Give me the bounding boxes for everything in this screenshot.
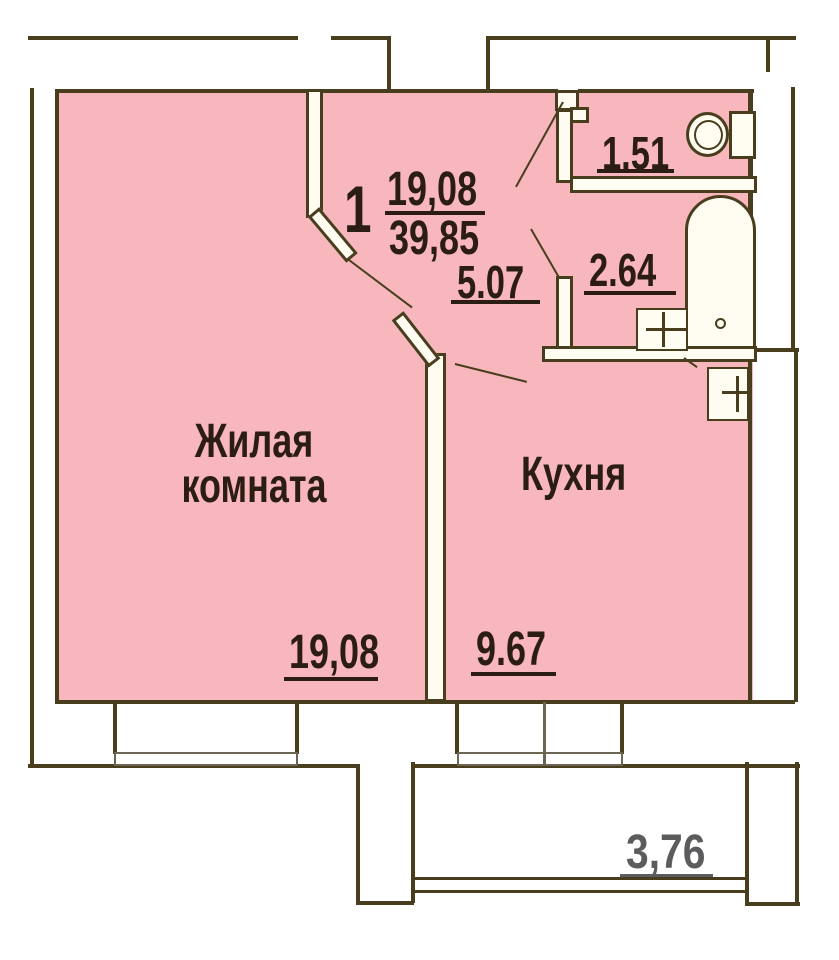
wall-top-outer-left xyxy=(28,36,298,40)
toilet-area-underline xyxy=(597,169,674,173)
apartment-number: 1 xyxy=(344,176,372,242)
wall-right-outer-mid xyxy=(794,351,798,702)
window-kitchen-balcony-door xyxy=(457,752,623,766)
toilet-tank xyxy=(729,111,756,159)
bathtub-drain xyxy=(715,318,726,329)
living-room-area-label: 19,08 xyxy=(289,629,379,677)
toilet-bowl-inner xyxy=(694,120,723,150)
balcony-wall-right xyxy=(745,762,749,906)
hallway-partition-wall xyxy=(306,89,323,218)
wall-left-outer xyxy=(30,88,34,768)
kitchen-area-underline xyxy=(471,672,556,676)
building-edge-right-bottom xyxy=(795,762,799,906)
hallway-area-label: 5.07 xyxy=(457,259,524,305)
bathroom-sink-cross-v xyxy=(662,312,665,347)
balcony-area-underline xyxy=(620,874,713,877)
living-room-label-line2: комната xyxy=(179,464,329,509)
living-kitchen-partition-wall xyxy=(425,353,446,702)
window-kitchen-jamb-left xyxy=(455,702,459,754)
wall-left-inner xyxy=(55,91,59,703)
living-room-area-underline xyxy=(284,677,378,681)
bathroom-sink-cross-h xyxy=(646,328,686,331)
window-kitchen-jamb-right xyxy=(620,702,624,754)
balcony-area-label: 3,76 xyxy=(626,829,705,877)
balcony-railing-inner xyxy=(413,890,747,893)
bathroom-left-wall xyxy=(556,276,573,352)
kitchen-sink-cross-v xyxy=(736,376,739,412)
wall-top-tick xyxy=(766,38,770,72)
wall-step-down xyxy=(356,764,360,904)
window-living-jamb-right xyxy=(295,702,299,754)
kitchen-sink xyxy=(707,367,749,421)
balcony-wall-left xyxy=(411,762,415,903)
bathroom-area-underline xyxy=(584,291,676,295)
wall-top-outer-right xyxy=(486,36,796,40)
balcony-bottom-line xyxy=(745,902,800,906)
wall-right-outer-top xyxy=(791,87,795,351)
window-living-jamb-left xyxy=(113,702,117,754)
kitchen-area-label: 9.67 xyxy=(476,626,546,674)
living-room-label-line1: Жилая xyxy=(179,419,329,464)
wall-top-jog-right xyxy=(486,38,490,91)
living-area-value: 19,08 xyxy=(387,166,477,214)
wall-top-outer-mid xyxy=(331,36,391,40)
bathroom-area-label: 2.64 xyxy=(589,247,656,293)
wall-top-inner-right xyxy=(578,89,754,93)
window-living xyxy=(114,752,298,766)
hallway-area-underline xyxy=(451,300,540,304)
living-room-label: Жилая комната xyxy=(179,419,329,509)
toilet-wall-nub xyxy=(570,107,589,123)
wall-step-bottom xyxy=(356,901,414,905)
kitchen-sink-cross-h xyxy=(722,391,748,394)
kitchen-label: Кухня xyxy=(521,451,626,499)
window-kitchen-mullion xyxy=(543,702,546,764)
floor-plan: 1 19,08 39,85 5.07 1.51 2.64 Жилая комна… xyxy=(0,0,839,960)
wall-top-jog-left xyxy=(387,38,391,91)
